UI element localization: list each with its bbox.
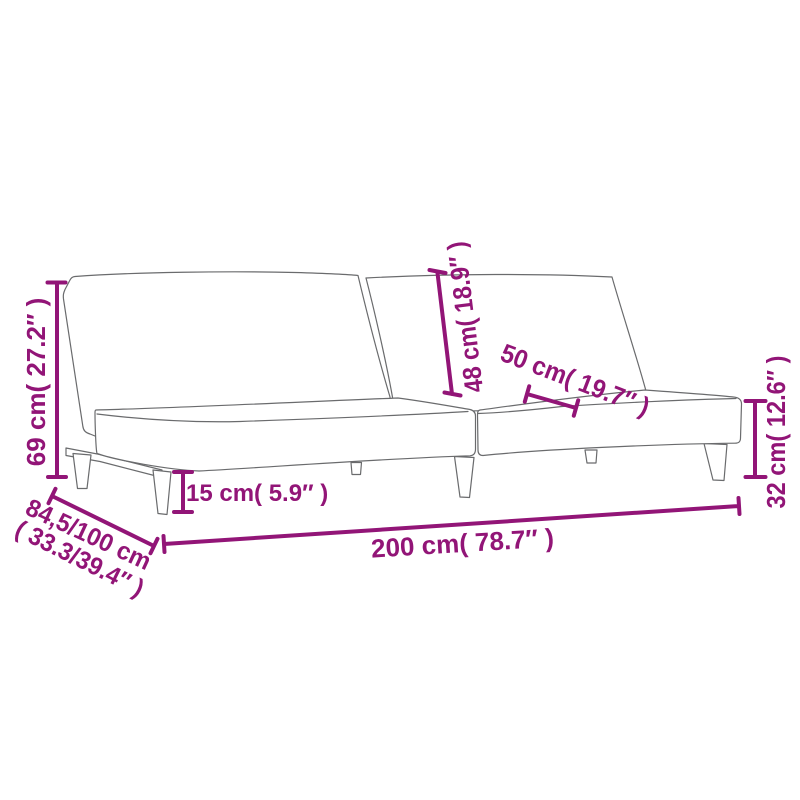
svg-text:15 cm( 5.9″ ): 15 cm( 5.9″ ) — [186, 480, 328, 507]
svg-text:32 cm( 12.6″ ): 32 cm( 12.6″ ) — [761, 356, 791, 509]
svg-text:69 cm( 27.2″ ): 69 cm( 27.2″ ) — [21, 298, 51, 467]
